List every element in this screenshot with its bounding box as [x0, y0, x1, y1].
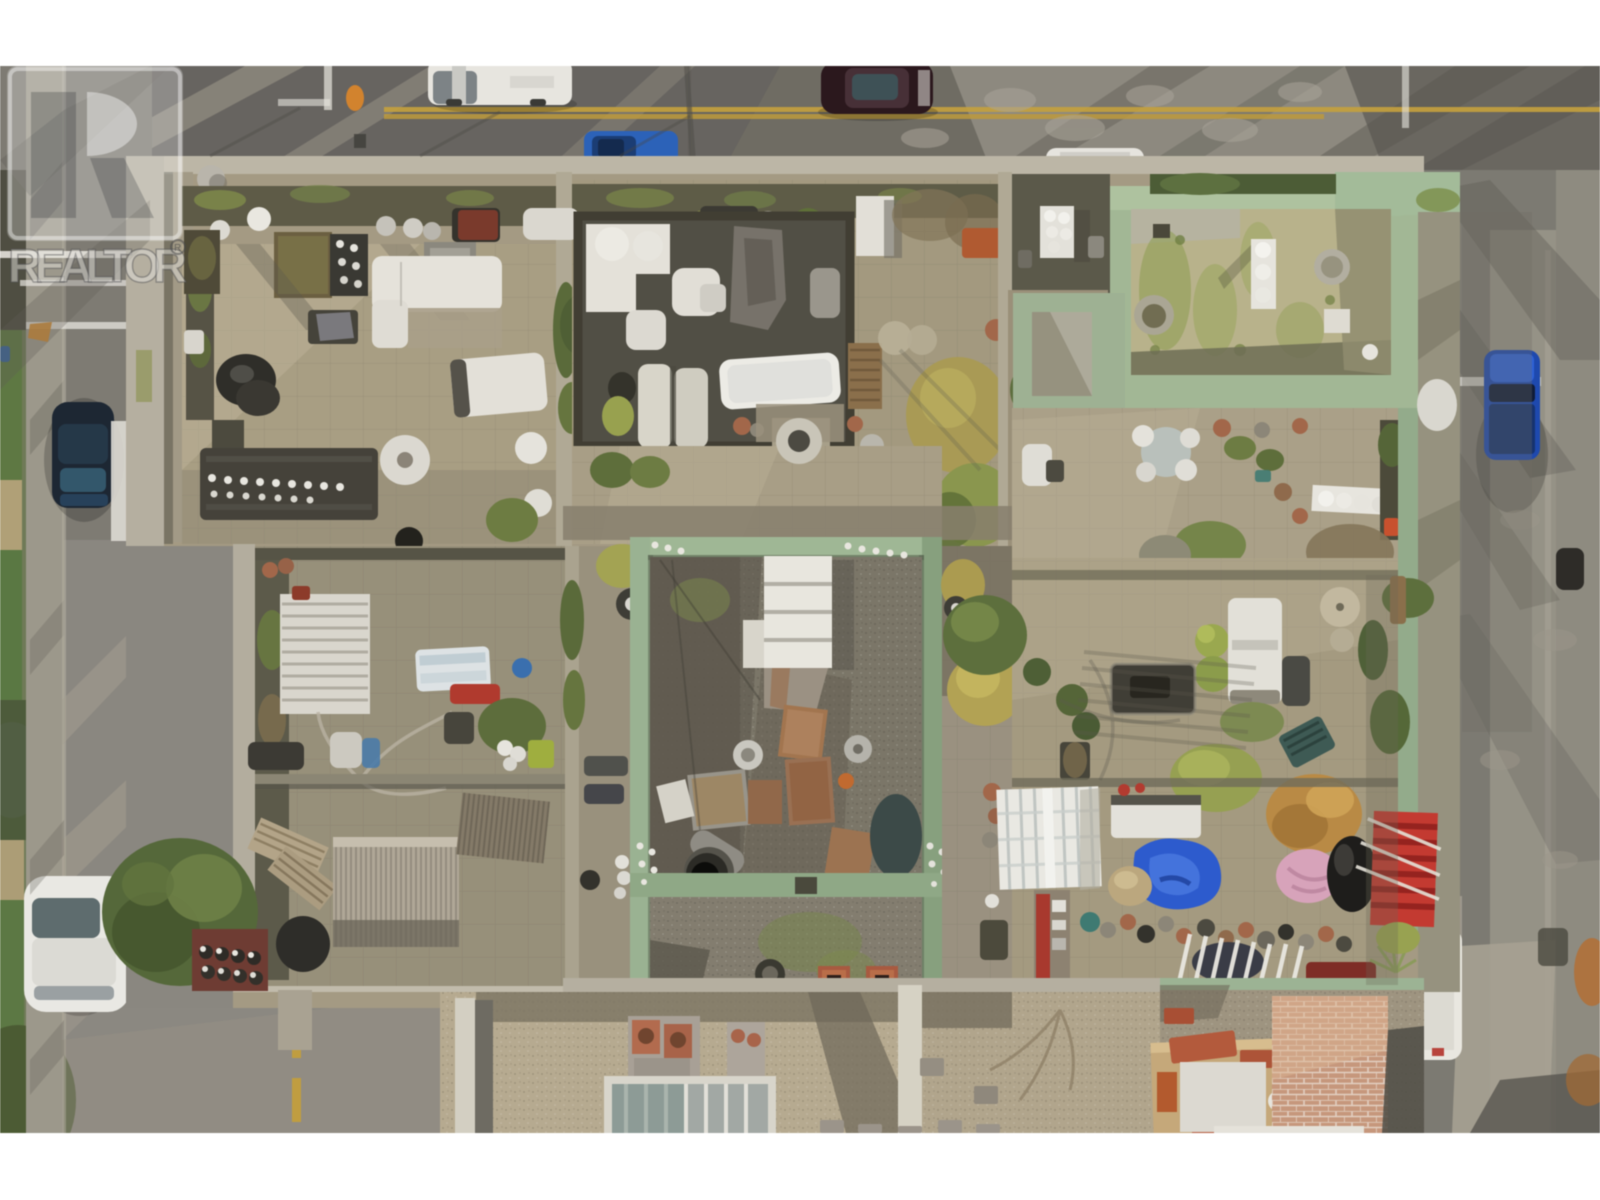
svg-text:REALTOR: REALTOR: [8, 239, 188, 292]
svg-text:R: R: [174, 243, 181, 254]
